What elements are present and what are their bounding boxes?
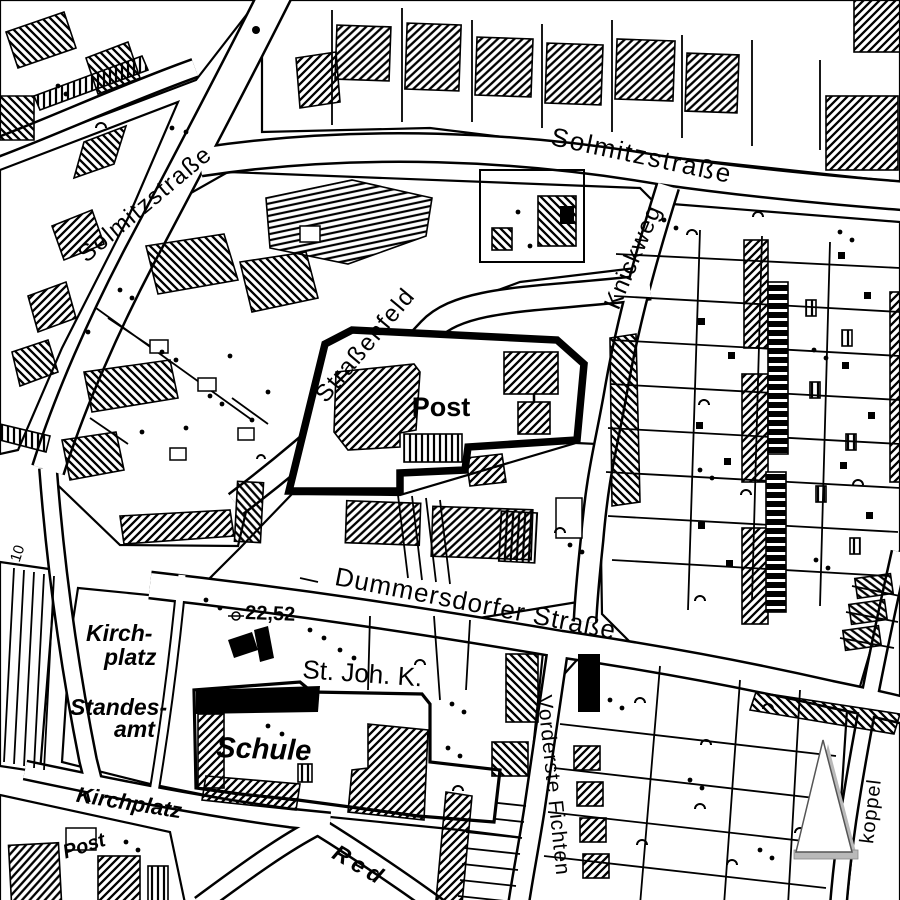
place-label-kirchplatz-line1: Kirch- [86, 620, 152, 646]
place-label-post: Post [412, 392, 471, 422]
place-label-standesamt-line2: amt [114, 716, 156, 742]
place-label-schule: Schule [216, 732, 312, 767]
house-number-label: 10 [7, 543, 28, 564]
place-label-kirchplatz-line2: platz [103, 644, 157, 670]
city-map: Solmitzstraße Solmitzstraße Straßenfeld … [0, 0, 900, 900]
map-canvas: Solmitzstraße Solmitzstraße Straßenfeld … [0, 0, 900, 900]
elevation-label: 22,52 [245, 602, 296, 626]
